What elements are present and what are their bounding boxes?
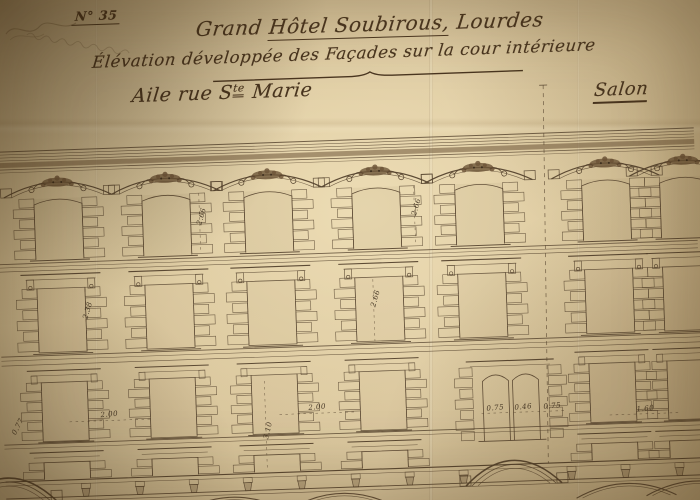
first-floor-window-bay [567, 349, 657, 424]
ground-floor-window-bay [570, 431, 659, 461]
ground-floor-window-bay [23, 450, 112, 480]
ground-floor-window-bay [233, 443, 322, 473]
first-floor-window-bay [338, 357, 428, 432]
second-floor-window-bay [123, 269, 216, 352]
title-post: Lourdes [455, 7, 545, 34]
ground-floor-window-bay [340, 439, 429, 469]
second-floor-window-bay [333, 261, 426, 344]
section-label-aile-ste-marie: Aile rue SteMarie [131, 79, 314, 107]
dimension-label: 0.75 [486, 402, 504, 413]
dimension-label: 2.00 [99, 409, 118, 420]
photo-of-drawing-sheet: N° 35 GrandHôtel Soubirous,Lourdes Éléva… [0, 0, 700, 500]
first-floor-window-bay [230, 361, 320, 436]
dimension-label: 0.75 [543, 400, 561, 411]
dimension-label: 0.77 [9, 417, 25, 437]
second-floor-window-bay [641, 251, 700, 334]
second-floor-window-bay [563, 253, 656, 336]
ground-floor-window-bay [131, 447, 220, 477]
attic-window-bay [421, 159, 538, 248]
first-floor-window-bay [128, 365, 218, 440]
section-label-salon: Salon [593, 78, 650, 104]
title-pre: Grand [195, 15, 264, 41]
facade-elevation-drawing: 2.662.662.382.663.102.002.000.750.460.75… [0, 116, 700, 500]
attic-window-bay [0, 174, 117, 263]
ground-floor-window-bay [648, 429, 700, 459]
wing-label-post: Marie [251, 79, 313, 103]
sheet-number: N° 35 [71, 7, 121, 26]
first-floor-window-bay [20, 368, 110, 443]
drawing-title: GrandHôtel Soubirous,Lourdes [195, 7, 552, 41]
second-floor-window-bay [436, 258, 529, 341]
dimension-label: 0.46 [514, 401, 532, 412]
dimension-label: 1.60 [636, 403, 654, 414]
attic-window-bay [108, 170, 225, 259]
wing-label-sup: te [232, 82, 245, 97]
attic-window-bay [210, 166, 327, 255]
title-underlined: Hôtel Soubirous, [268, 10, 451, 41]
second-floor-window-bay [15, 273, 108, 356]
dimension-label: 2.66 [409, 197, 423, 217]
wing-label-pre: Aile rue S [131, 82, 234, 108]
attic-window-bay [626, 152, 700, 241]
dimension-label: 2.00 [307, 401, 326, 412]
second-floor-window-bay [225, 265, 318, 348]
